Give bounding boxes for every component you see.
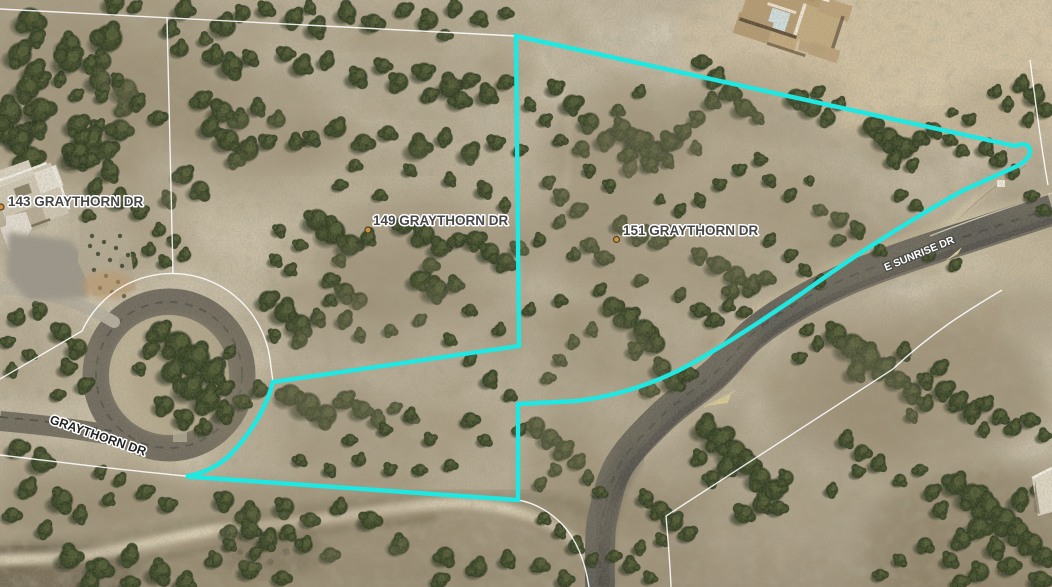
svg-text:143 GRAYTHORN DR: 143 GRAYTHORN DR [8, 194, 144, 209]
svg-text:149 GRAYTHORN DR: 149 GRAYTHORN DR [373, 213, 509, 228]
svg-text:151 GRAYTHORN DR: 151 GRAYTHORN DR [623, 223, 759, 238]
